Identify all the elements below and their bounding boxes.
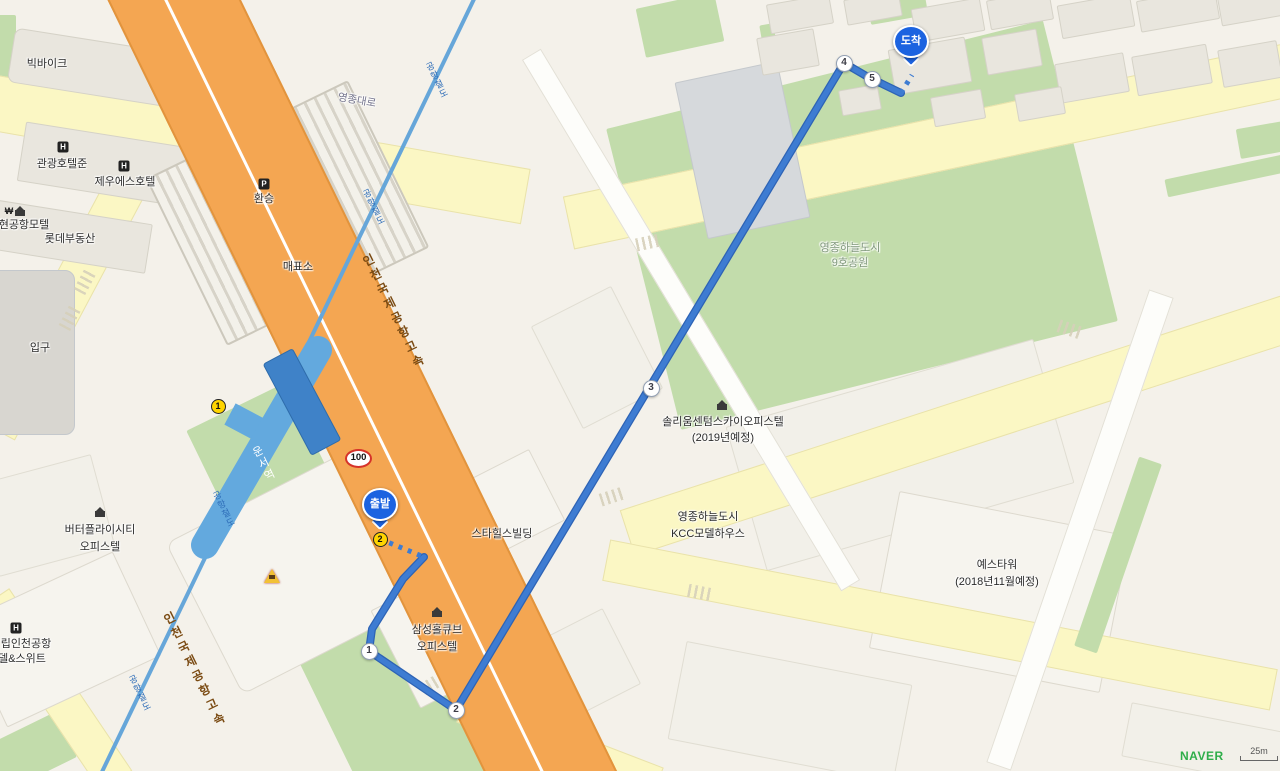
map-label: 입구 <box>30 339 50 355</box>
route-line <box>369 63 901 710</box>
map-label: 매표소 <box>283 258 313 274</box>
map-label: 빅바이크 <box>27 55 67 71</box>
map-label: (2018년11월예정) <box>955 573 1039 589</box>
map-label: 예스타워 <box>977 556 1017 572</box>
building-icon <box>15 210 25 216</box>
map-label: 스타힐스빌딩 <box>472 525 533 541</box>
building-icon <box>432 611 442 617</box>
map-label: KCC모델하우스 <box>671 525 745 541</box>
map-label: (2019년예정) <box>692 429 754 445</box>
map-label: 현공항모텔 <box>0 216 49 232</box>
parking-icon: P <box>259 179 270 190</box>
hotel-icon: H <box>58 142 69 153</box>
route-waypoint-3[interactable]: 3 <box>643 380 660 397</box>
start-pin[interactable]: 출발 <box>361 488 399 538</box>
pin-label: 도착 <box>893 25 929 58</box>
station-exit-2[interactable]: 2 <box>373 532 388 547</box>
map-label: 환승 <box>254 190 274 206</box>
scale-bar <box>1240 756 1278 761</box>
map-label: 델&스위트 <box>0 650 46 666</box>
station-exit-1[interactable]: 1 <box>211 399 226 414</box>
map-label: 롯데부동산 <box>45 230 96 246</box>
speed-limit-sign: 100 <box>345 449 372 468</box>
route-waypoint-1[interactable]: 1 <box>361 643 378 660</box>
arrival-pin[interactable]: 도착 <box>892 25 930 75</box>
route-waypoint-2[interactable]: 2 <box>448 702 465 719</box>
route-dashed-segment <box>901 75 912 93</box>
building-icon <box>717 404 727 410</box>
won-icon: ₩ <box>5 206 14 216</box>
map-label: 영종하늘도시 <box>820 239 881 255</box>
hotel-icon: H <box>119 161 130 172</box>
map-canvas[interactable]: 100 NAVER 25m 빅바이크관광호텔준제우에스호텔현공항모텔롯데부동산입… <box>0 0 1280 771</box>
map-scale: 25m <box>1240 746 1278 761</box>
map-label: 립인천공항 <box>1 635 52 651</box>
warning-sign-icon <box>264 569 280 583</box>
pin-label: 출발 <box>362 488 398 521</box>
map-label: 버터플라이시티 <box>65 521 136 537</box>
hotel-icon: H <box>11 623 22 634</box>
scale-text: 25m <box>1240 746 1278 756</box>
map-label: 제우에스호텔 <box>95 173 156 189</box>
map-label: 9호공원 <box>832 254 868 270</box>
route-waypoint-4[interactable]: 4 <box>836 55 853 72</box>
map-label: 오피스텔 <box>80 538 120 554</box>
naver-logo: NAVER <box>1180 749 1224 763</box>
route-waypoint-5[interactable]: 5 <box>864 71 881 88</box>
map-label: 오피스텔 <box>417 638 457 654</box>
route-outline <box>369 63 901 710</box>
building-icon <box>95 511 105 517</box>
map-label: 솔리움센텀스카이오피스텔 <box>662 413 783 429</box>
map-label: 관광호텔준 <box>37 155 88 171</box>
map-label: 삼성홀큐브 <box>412 621 463 637</box>
map-label: 영종하늘도시 <box>678 508 739 524</box>
